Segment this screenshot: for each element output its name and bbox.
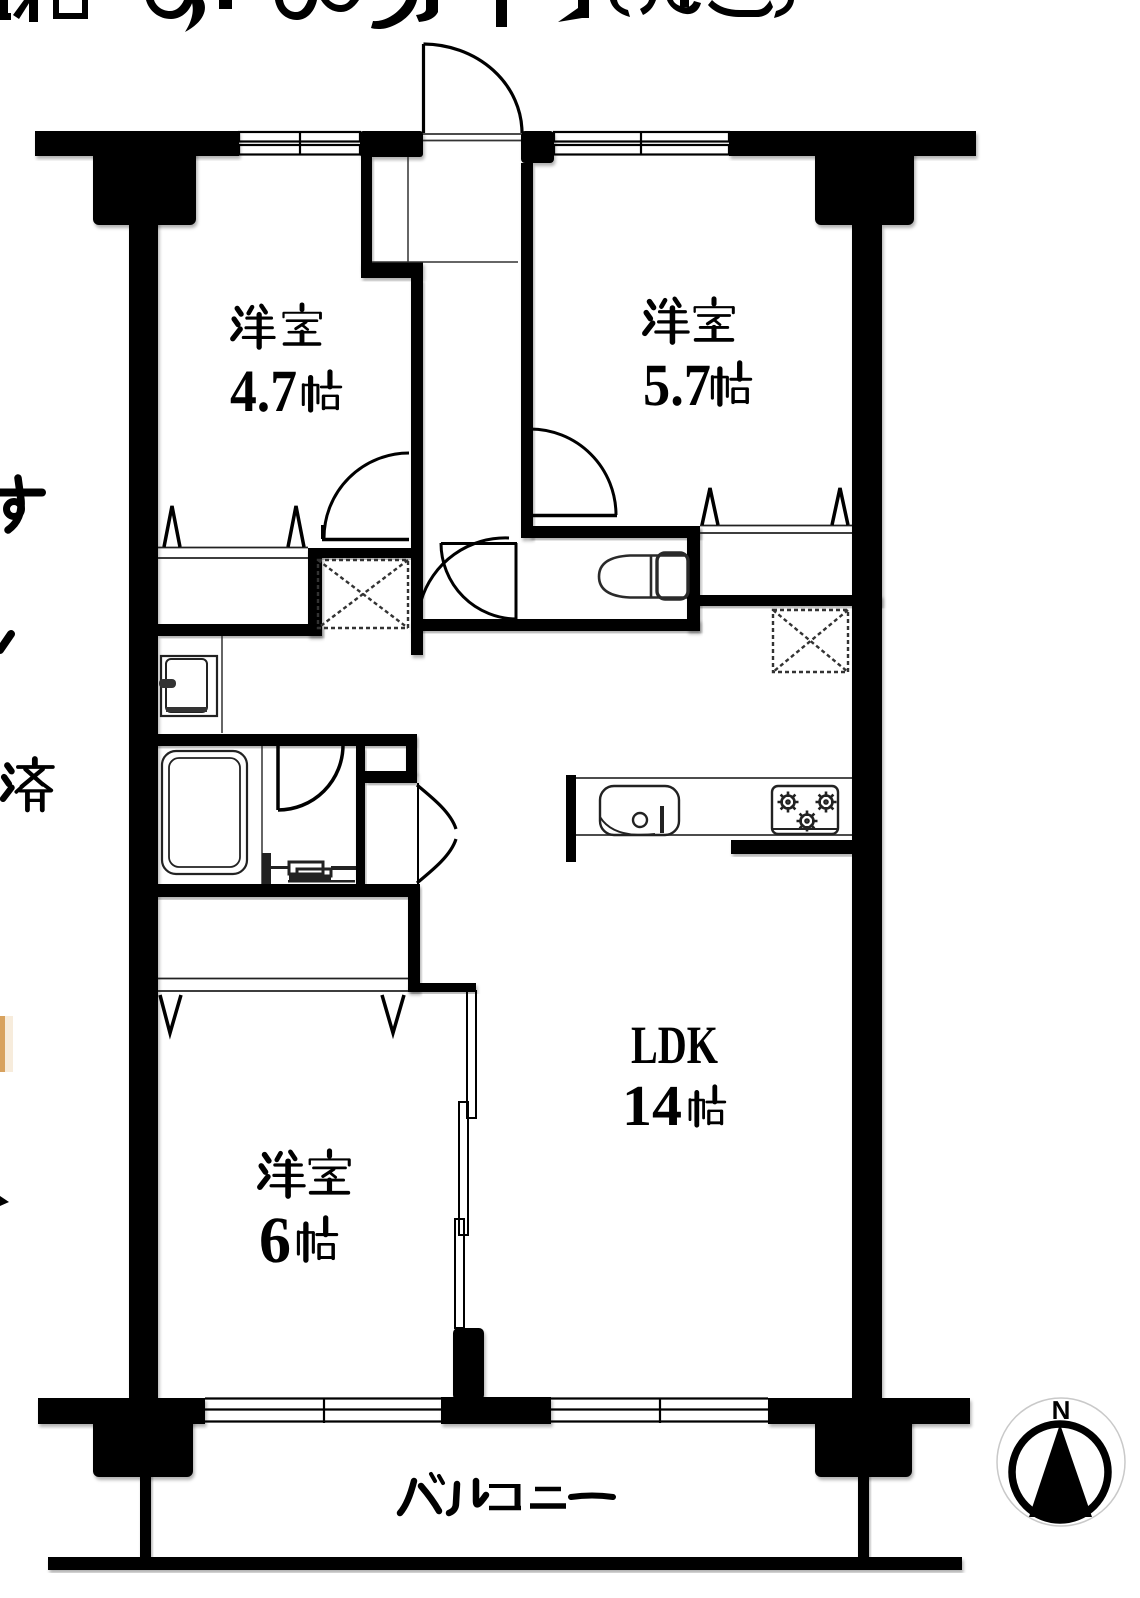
svg-text:5.7: 5.7 bbox=[643, 352, 711, 418]
svg-text:6: 6 bbox=[259, 1204, 291, 1277]
svg-text:4.7: 4.7 bbox=[230, 358, 297, 424]
svg-text:14: 14 bbox=[622, 1073, 682, 1138]
svg-text:LDK: LDK bbox=[631, 1015, 718, 1075]
svg-text:N: N bbox=[1052, 1395, 1071, 1425]
